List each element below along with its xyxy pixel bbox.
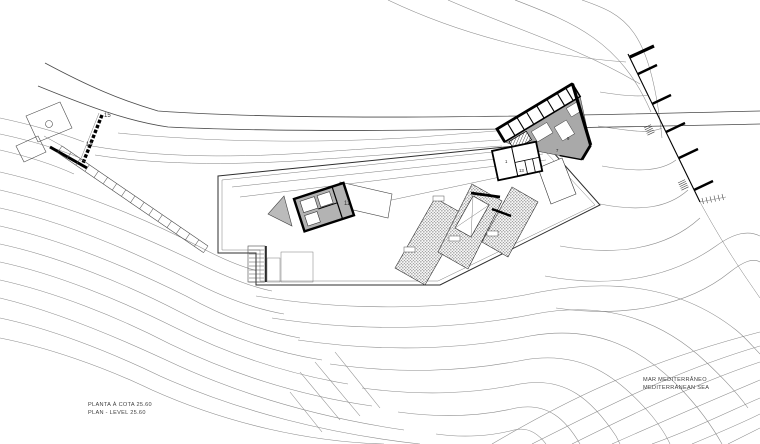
stair-tread [112, 184, 117, 191]
plan-title-line2: PLAN - LEVEL 25.60 [88, 410, 146, 416]
fence-hatch-marks [644, 125, 724, 204]
contour-line [436, 429, 546, 444]
contour-line [448, 0, 640, 84]
fence-hatch [718, 195, 720, 201]
boundary-continuation [700, 202, 760, 298]
contour-line [0, 318, 420, 444]
boundary-fence [628, 46, 760, 298]
gate-structure [26, 102, 72, 142]
stair-tread [149, 209, 154, 216]
roof-vent [487, 231, 498, 236]
fence-tick [652, 95, 671, 104]
roof-vent [449, 236, 460, 241]
contour-line [335, 352, 380, 408]
stair-tread [121, 190, 126, 197]
fence-hatch [714, 196, 716, 202]
site-plan-drawing: 15 14 11 1 13 7 9 PLANTA À COTA 25.60 PL… [0, 0, 760, 444]
contour-line [290, 392, 322, 432]
contour-line [600, 190, 688, 208]
label-roof-11: 11 [344, 201, 351, 207]
contour-line [652, 398, 760, 444]
contour-line [492, 332, 760, 444]
stair-tread [167, 221, 172, 228]
label-road-15: 15 [104, 113, 111, 119]
architectural-site-plan: 15 14 11 1 13 7 9 PLANTA À COTA 25.60 PL… [0, 0, 760, 444]
road-edge-upper [45, 63, 760, 117]
contour-line [602, 160, 676, 170]
contour-line [600, 92, 648, 96]
sea-label-line2: MEDITERRANEAN SEA [643, 385, 709, 391]
contour-line [398, 407, 580, 444]
contour-line [272, 310, 748, 408]
sea-label-line1: MAR MEDITERRÂNEO [643, 376, 707, 383]
boundary-line [628, 54, 700, 202]
fence-tick [679, 149, 698, 158]
contour-line [118, 130, 508, 141]
fence-hatch [710, 196, 712, 202]
contour-line [388, 0, 626, 62]
contour-line [315, 362, 360, 416]
contour-line [560, 218, 700, 250]
contour-line [532, 346, 760, 444]
access-road [38, 63, 760, 163]
retaining-wall-edge [80, 113, 99, 161]
contour-line [0, 298, 404, 430]
contour-line [0, 118, 84, 142]
stair-tread [158, 215, 163, 222]
stair-tread [94, 171, 99, 178]
road-edge-lower [38, 86, 760, 130]
plan-title-line1: PLANTA À COTA 25.60 [88, 401, 152, 408]
stair-tread [176, 227, 181, 234]
stair-tread [185, 234, 190, 241]
fence-tick [638, 65, 657, 74]
gate-post [46, 121, 53, 128]
stair-tread [140, 202, 145, 209]
room-number-13: 13 [519, 168, 524, 173]
contour-line [300, 372, 340, 420]
stair-treads [58, 146, 209, 253]
stair-tread [131, 196, 136, 203]
fence-hatch [722, 194, 724, 200]
roof-vent [433, 196, 444, 201]
fence-tick [694, 181, 713, 190]
stair-approach [44, 136, 62, 146]
fence-hatch [702, 198, 704, 204]
contour-line [0, 338, 384, 444]
stair-tread [103, 177, 108, 184]
fence-tick [666, 123, 685, 132]
contour-line [692, 414, 760, 444]
boundary-base-comb [700, 197, 726, 202]
roof-vent [404, 247, 415, 252]
contour-line [556, 260, 760, 311]
label-path-14: 14 [86, 142, 93, 148]
fence-hatch [706, 197, 708, 203]
contour-line [728, 428, 760, 444]
